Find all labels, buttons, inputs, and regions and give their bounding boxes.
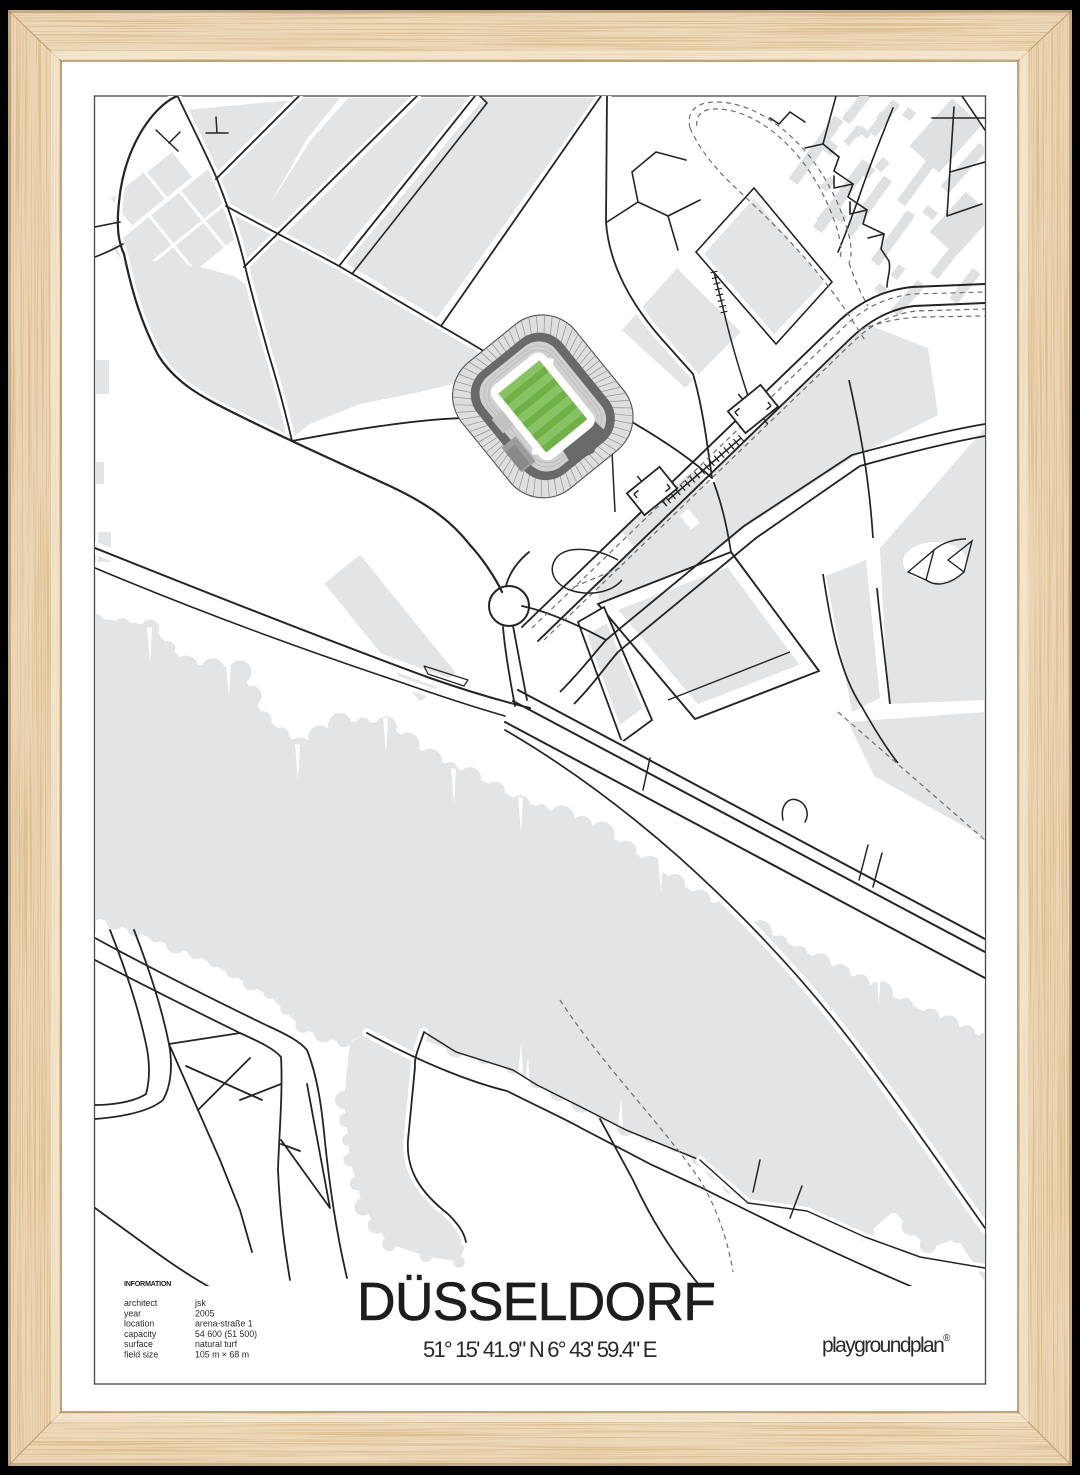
svg-text:playgroundplan: playgroundplan <box>822 1334 944 1357</box>
svg-text:DÜSSELDORF: DÜSSELDORF <box>357 1273 715 1332</box>
svg-text:architect: architect <box>124 1298 158 1308</box>
svg-text:jsk: jsk <box>194 1298 206 1308</box>
svg-text:2005: 2005 <box>195 1308 215 1318</box>
svg-text:INFORMATION: INFORMATION <box>124 1279 171 1288</box>
svg-text:capacity: capacity <box>124 1329 157 1339</box>
svg-text:natural turf: natural turf <box>195 1339 238 1349</box>
svg-text:field size: field size <box>124 1350 158 1360</box>
svg-text:54 600 (51 500): 54 600 (51 500) <box>195 1329 257 1339</box>
svg-text:location: location <box>124 1319 154 1329</box>
svg-text:51° 15' 41.9" N 6° 43' 59.4": 51° 15' 41.9" N 6° 43' 59.4" E <box>423 1337 657 1362</box>
svg-text:surface: surface <box>124 1339 153 1349</box>
svg-text:105 m × 68 m: 105 m × 68 m <box>195 1350 249 1360</box>
svg-text:year: year <box>124 1308 141 1318</box>
svg-text:arena-straße 1: arena-straße 1 <box>195 1319 253 1329</box>
svg-text:®: ® <box>943 1333 951 1344</box>
